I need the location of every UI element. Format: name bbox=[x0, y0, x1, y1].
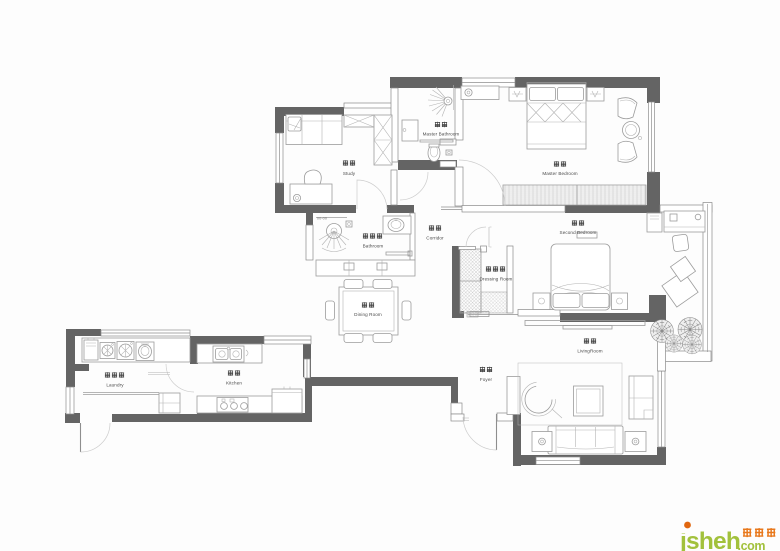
svg-text:Bathroom: Bathroom bbox=[363, 244, 384, 249]
svg-text:Dressing Room: Dressing Room bbox=[480, 277, 513, 282]
svg-text:Study: Study bbox=[343, 171, 356, 176]
svg-text:Dining Room: Dining Room bbox=[354, 312, 382, 317]
svg-text:Master Bathroom: Master Bathroom bbox=[423, 132, 460, 137]
svg-text:Second Bedroom: Second Bedroom bbox=[560, 230, 597, 235]
svg-text:Corridor: Corridor bbox=[426, 236, 444, 241]
svg-text:Foyer: Foyer bbox=[480, 377, 493, 382]
svg-text:Laundry: Laundry bbox=[106, 383, 124, 388]
svg-text:Kitchen: Kitchen bbox=[226, 381, 242, 386]
svg-text:.com: .com bbox=[738, 539, 766, 551]
svg-text:LivingRoom: LivingRoom bbox=[577, 349, 602, 354]
svg-text:00-00: 00-00 bbox=[317, 217, 327, 221]
svg-text:Master Bedroom: Master Bedroom bbox=[542, 171, 577, 176]
